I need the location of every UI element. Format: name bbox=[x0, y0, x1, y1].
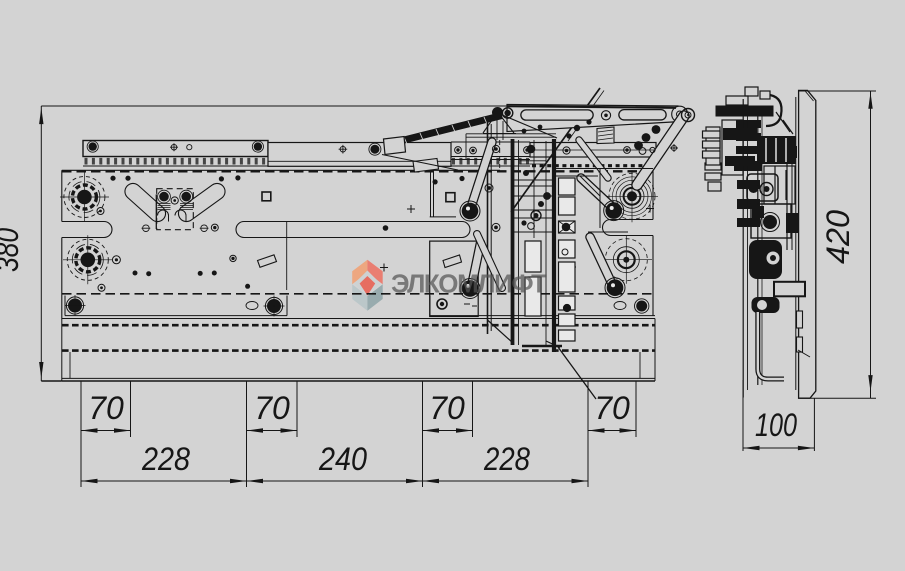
svg-text:240: 240 bbox=[318, 441, 367, 477]
svg-text:70: 70 bbox=[254, 390, 290, 426]
svg-text:420: 420 bbox=[820, 210, 856, 264]
svg-text:70: 70 bbox=[88, 390, 124, 426]
svg-text:70: 70 bbox=[594, 390, 630, 426]
svg-text:100: 100 bbox=[755, 407, 797, 443]
svg-text:ЭЛКОМЛИФТ: ЭЛКОМЛИФТ bbox=[391, 269, 547, 299]
svg-text:228: 228 bbox=[483, 441, 530, 477]
svg-text:70: 70 bbox=[429, 390, 465, 426]
svg-text:380: 380 bbox=[0, 228, 25, 272]
svg-text:228: 228 bbox=[141, 441, 190, 477]
